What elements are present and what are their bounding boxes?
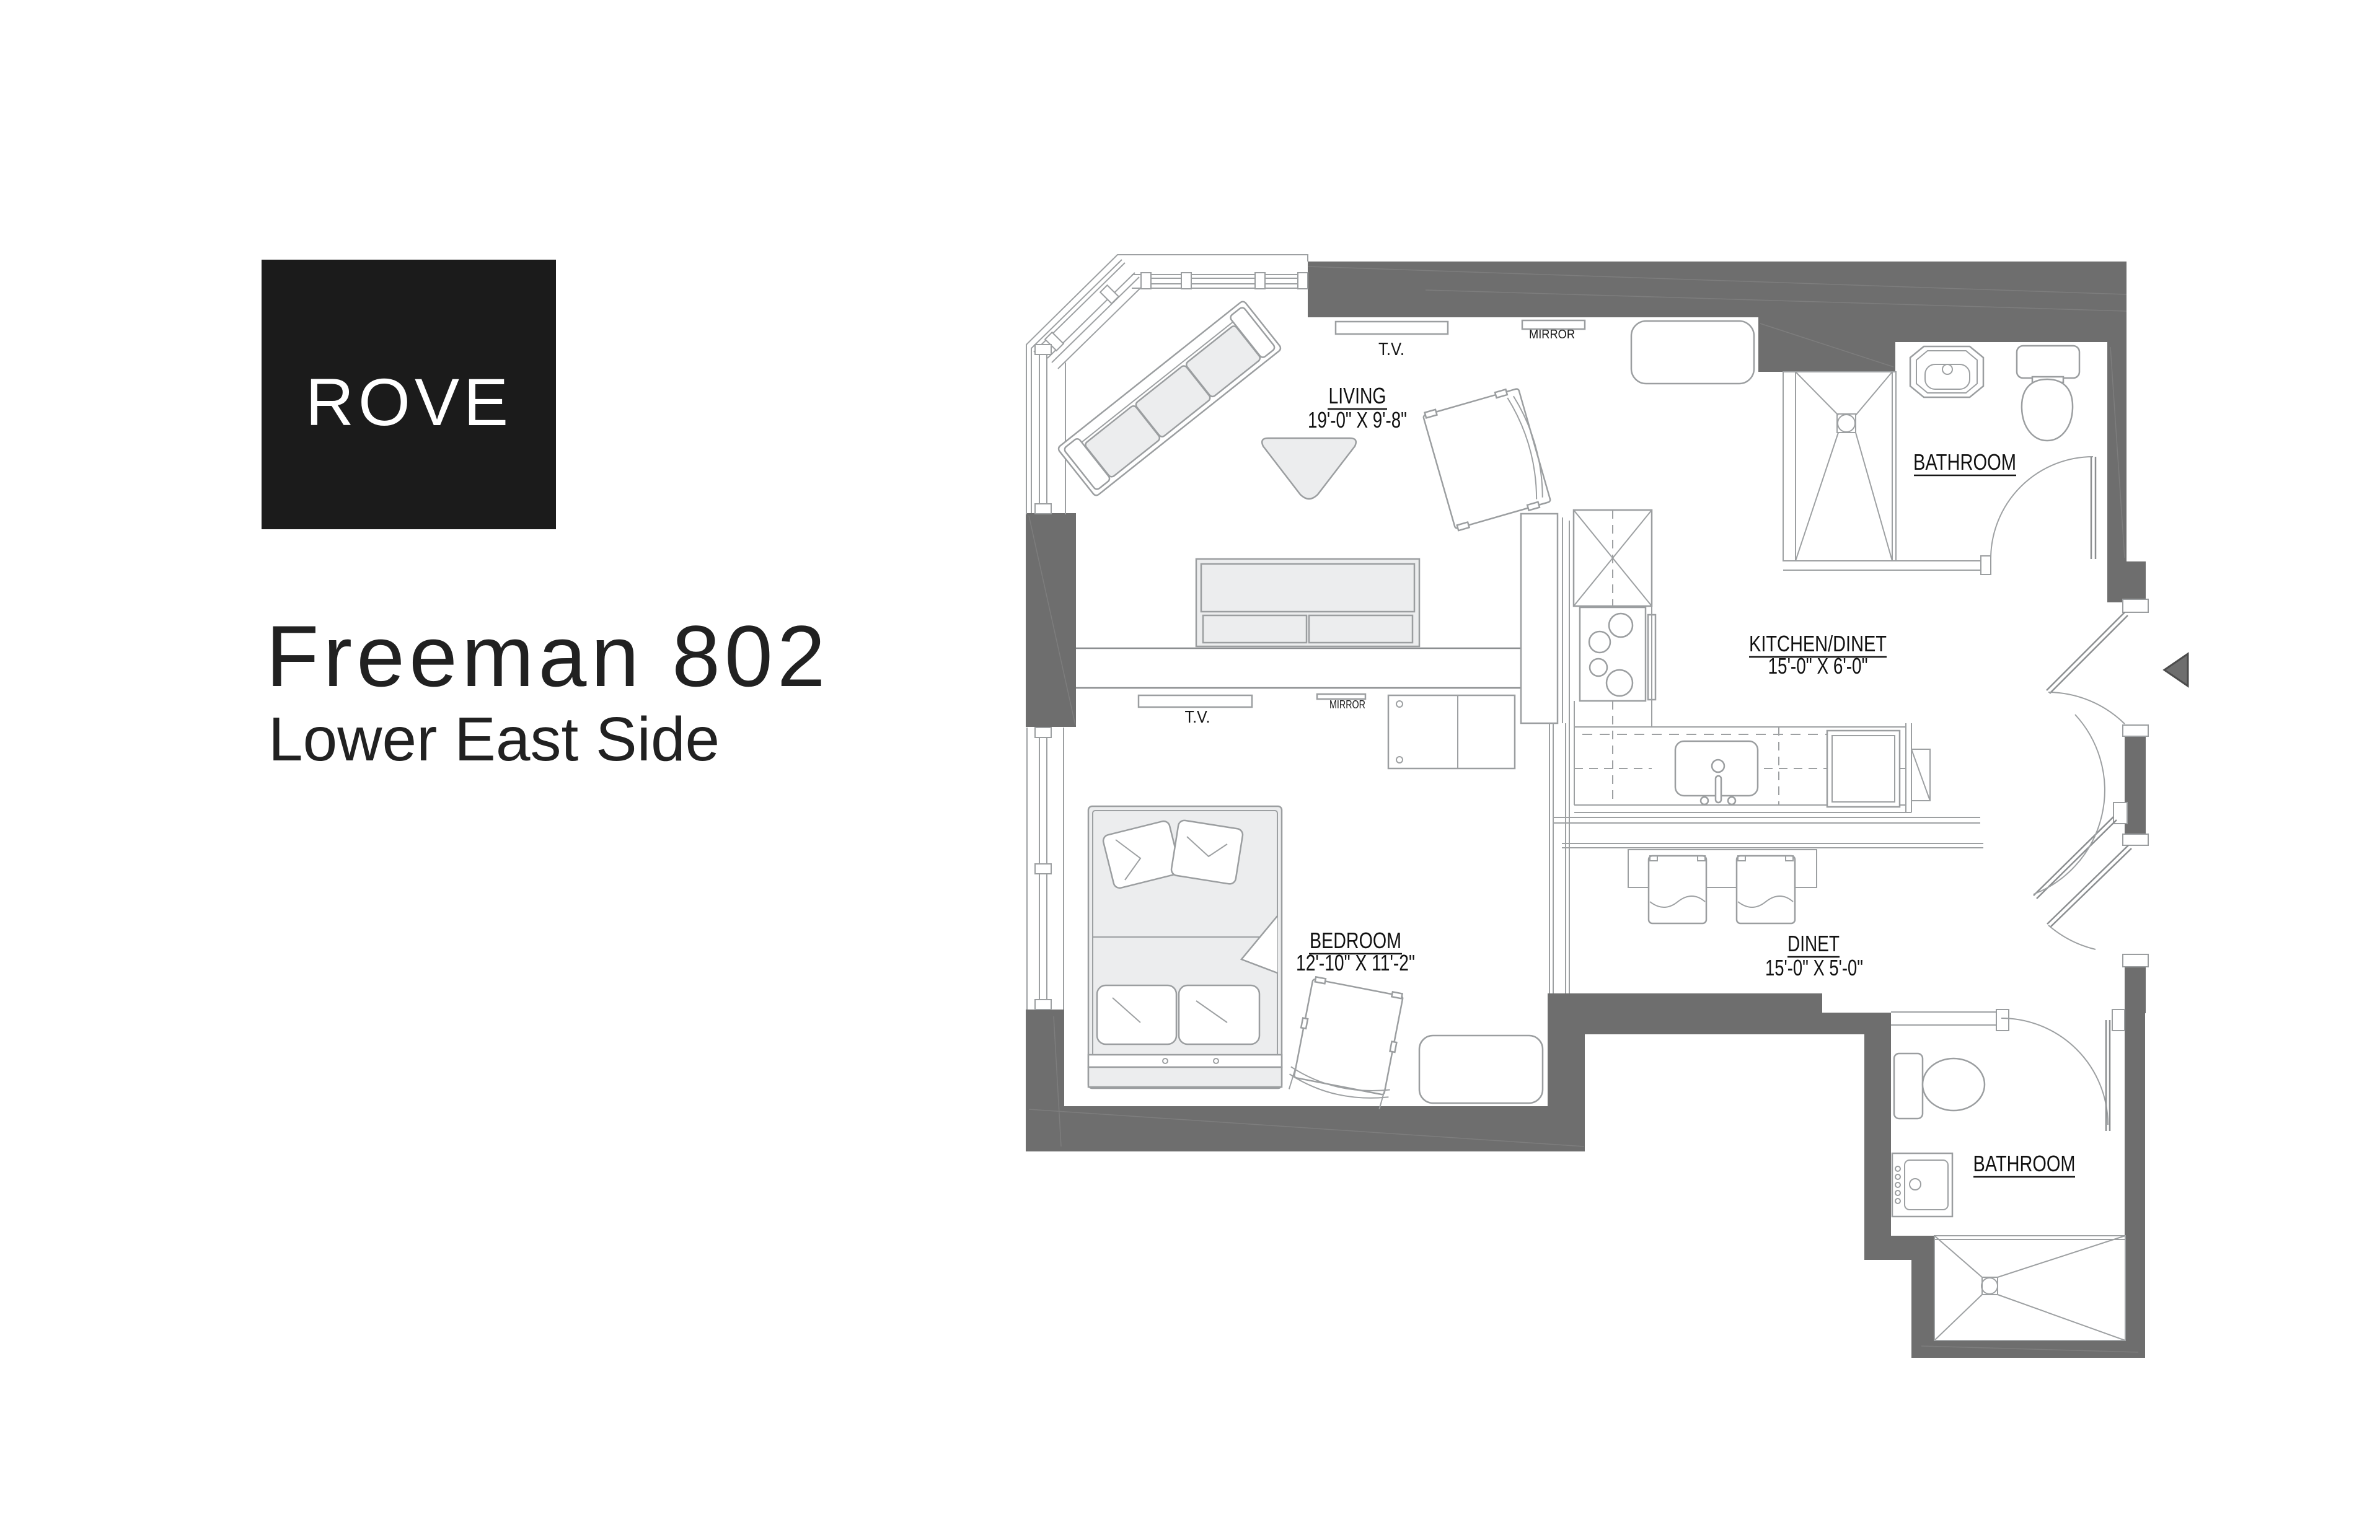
svg-text:BATHROOM: BATHROOM (1913, 449, 2016, 475)
svg-text:Freeman 802: Freeman 802 (266, 607, 830, 705)
svg-text:T.V.: T.V. (1185, 707, 1210, 726)
svg-text:MIRROR: MIRROR (1529, 328, 1575, 341)
svg-text:KITCHEN/DINET: KITCHEN/DINET (1749, 631, 1887, 656)
svg-text:19'-0" X 9'-8": 19'-0" X 9'-8" (1308, 407, 1407, 433)
svg-text:DINET: DINET (1787, 931, 1840, 956)
svg-text:BATHROOM: BATHROOM (1973, 1151, 2076, 1176)
svg-text:T.V.: T.V. (1378, 340, 1404, 359)
svg-text:LIVING: LIVING (1329, 383, 1386, 408)
svg-text:Lower East Side: Lower East Side (268, 705, 720, 774)
svg-text:ROVE: ROVE (306, 364, 513, 439)
svg-text:BEDROOM: BEDROOM (1310, 928, 1401, 953)
svg-text:MIRROR: MIRROR (1329, 698, 1365, 711)
svg-text:15'-0" X 5'-0": 15'-0" X 5'-0" (1765, 955, 1863, 980)
